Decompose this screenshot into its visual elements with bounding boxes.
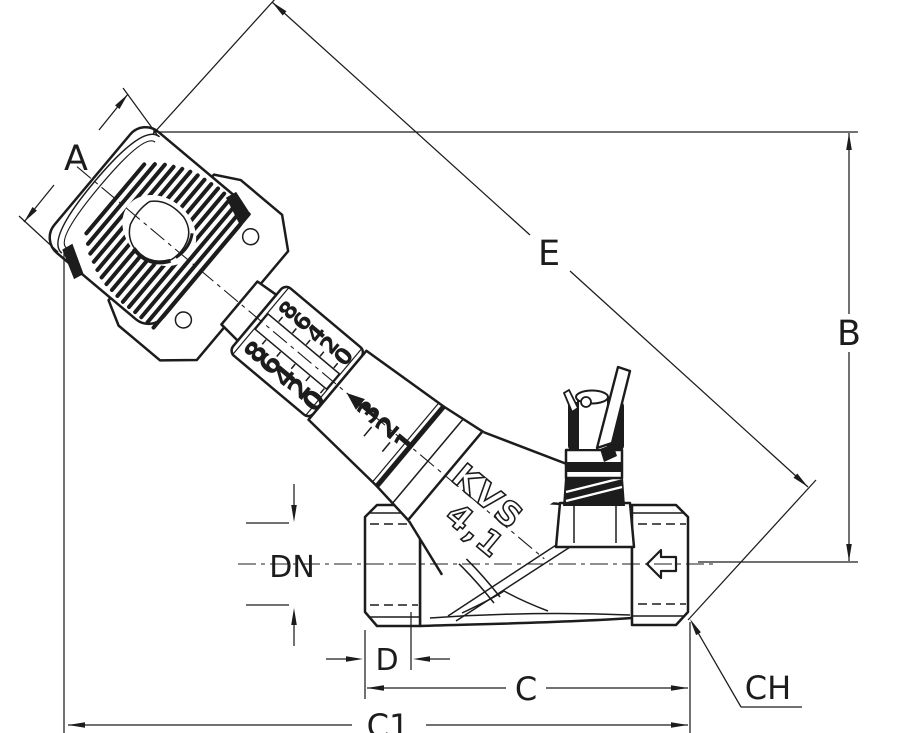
dimension-c: C [367,670,688,708]
dim-label-a: A [64,139,88,179]
dim-label-e: E [538,234,560,274]
dim-label-dn: DN [269,550,315,585]
outlet-port [632,505,688,625]
dimension-d: D [326,643,450,678]
dim-label-b: B [837,314,861,354]
test-port-collar-band [566,462,622,472]
drawing-page: 8 6 4 2 0 8 6 4 2 0 [0,0,900,733]
dim-label-c1: C1 [367,707,410,733]
dim-label-ch: CH [745,669,791,707]
callout-ch: CH [690,619,802,707]
test-port-needle [564,390,578,412]
test-port-thread-band [563,478,625,506]
test-port [556,367,634,547]
dim-label-c: C [515,670,537,708]
extension-line-e-top [153,0,276,134]
test-port-nipple [581,397,591,407]
test-port-base-hex [556,503,634,547]
dimension-b: B [837,133,861,561]
dim-label-d: D [375,643,398,678]
dimension-c1: C1 [68,707,688,733]
balancing-valve-technical-drawing: 8 6 4 2 0 8 6 4 2 0 [0,0,900,733]
dimension-dn: DN [269,484,315,646]
extension-line-e-bottom [688,480,816,620]
